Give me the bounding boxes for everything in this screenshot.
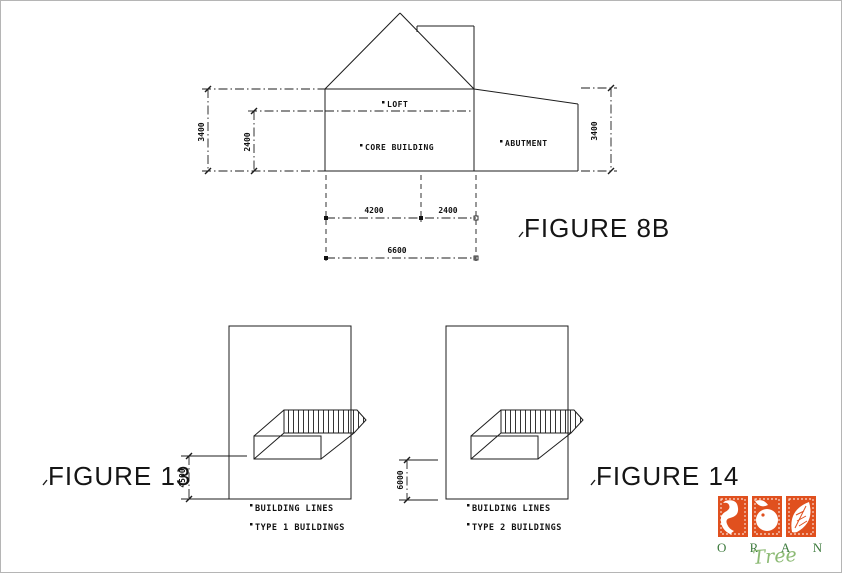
label-bullet xyxy=(360,144,363,147)
logo-square-branch xyxy=(718,496,748,537)
orange-fruit-icon xyxy=(756,509,778,531)
label-flick xyxy=(519,232,523,237)
abutment-label: ABUTMENT xyxy=(505,139,548,148)
logo-square-orange-fruit xyxy=(752,496,782,537)
fig13-note-building-lines: BUILDING LINES xyxy=(255,504,334,514)
figure-14-label: FIGURE 14 xyxy=(596,461,739,491)
loft-label: LOFT xyxy=(387,100,408,109)
dim-right-text: 3400 xyxy=(590,121,599,140)
label-bullet xyxy=(467,504,470,507)
drawing-canvas: LOFT CORE BUILDING ABUTMENT 3400 2400 34… xyxy=(1,1,842,573)
label-bullet xyxy=(250,523,253,526)
label-bullet xyxy=(382,101,385,104)
label-flick xyxy=(591,480,595,485)
fig14-title: FIGURE 14 xyxy=(591,461,739,491)
fig13-building-plan xyxy=(254,410,366,459)
logo-square-leaf xyxy=(786,496,816,537)
dim-left-outer-text: 3400 xyxy=(197,122,206,141)
fig14-building-plan xyxy=(471,410,583,459)
label-bullet xyxy=(500,140,503,143)
figure-13-label: FIGURE 13 xyxy=(48,461,191,491)
fig14-dim-text: 6000 xyxy=(396,470,405,489)
dim-bottom-total-text: 6600 xyxy=(387,246,406,255)
label-bullet xyxy=(250,504,253,507)
fig13-plan: 4500 BUILDING LINES TYPE 1 BUILDINGS xyxy=(178,326,366,533)
fig8b-title: FIGURE 8B xyxy=(519,213,670,243)
fig13-note-type: TYPE 1 BUILDINGS xyxy=(255,523,345,533)
fig8b-area-labels: LOFT CORE BUILDING ABUTMENT xyxy=(360,100,548,152)
orange-tree-logo: O R A N G E Tree xyxy=(717,496,842,569)
fig8b-dim-left-outer: 3400 xyxy=(197,86,325,174)
fig14-note-building-lines: BUILDING LINES xyxy=(472,504,551,514)
dim-left-inner-text: 2400 xyxy=(243,132,252,151)
core-building-label: CORE BUILDING xyxy=(365,143,434,152)
drawing-sheet: LOFT CORE BUILDING ABUTMENT 3400 2400 34… xyxy=(0,0,842,573)
dim-bottom-core-text: 4200 xyxy=(364,206,383,215)
dim-bottom-abutment-text: 2400 xyxy=(438,206,457,215)
fig8b-dim-right: 3400 xyxy=(581,85,617,174)
fig8b-dims-bottom: 4200 2400 6600 xyxy=(324,175,478,262)
label-flick xyxy=(43,480,47,485)
label-bullet xyxy=(467,523,470,526)
fig14-note-type: TYPE 2 BUILDINGS xyxy=(472,523,562,533)
fig14-plan: 6000 BUILDING LINES TYPE 2 BUILDINGS xyxy=(396,326,583,533)
fig8b-dim-left-inner: 2400 xyxy=(243,108,325,174)
logo-script-text: Tree xyxy=(752,544,798,569)
figure-8b-label: FIGURE 8B xyxy=(524,213,670,243)
fig13-title: FIGURE 13 xyxy=(43,461,191,491)
